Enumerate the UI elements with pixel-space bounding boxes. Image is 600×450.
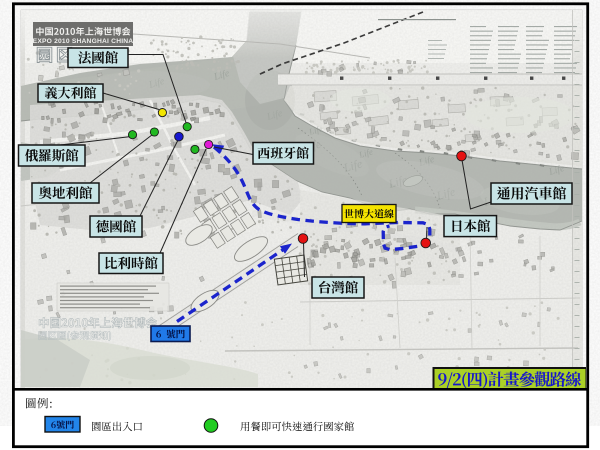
svg-text:EXPO 2010 SHANGHAI CHINA: EXPO 2010 SHANGHAI CHINA bbox=[33, 38, 134, 45]
